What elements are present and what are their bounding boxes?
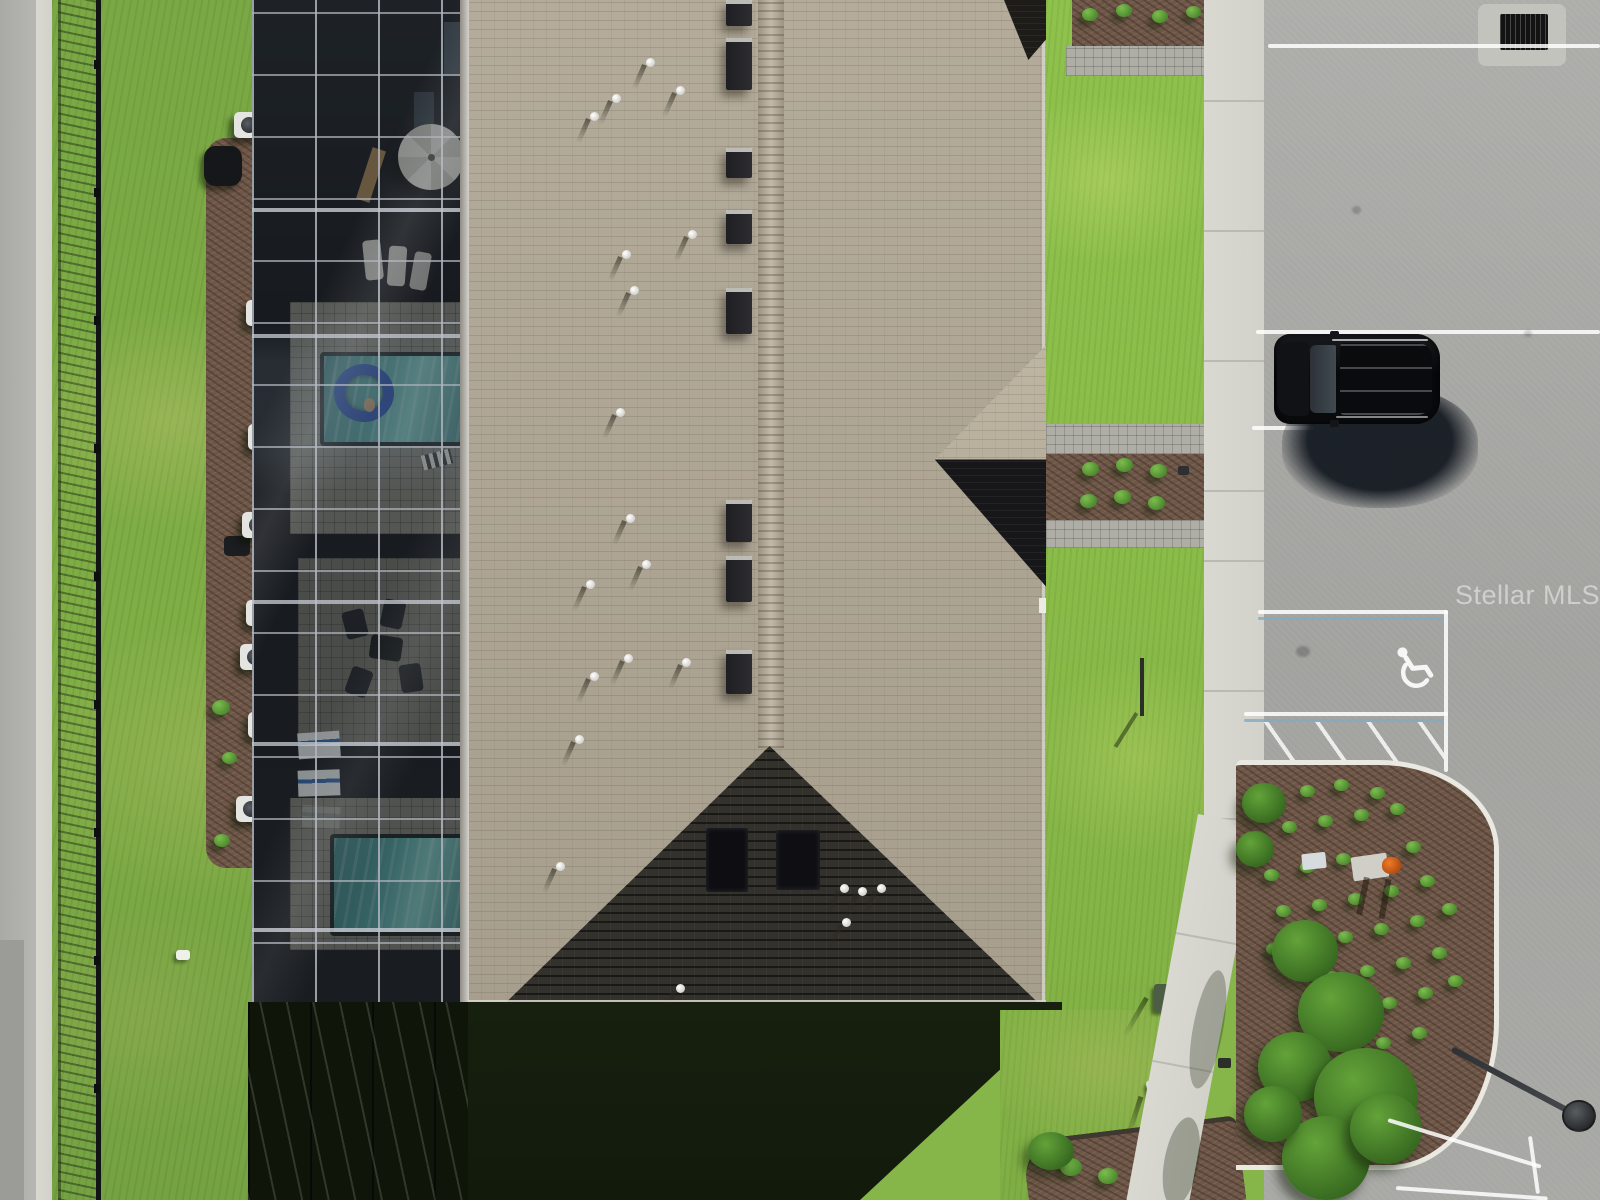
fence-post bbox=[94, 700, 100, 709]
pipe-vent bbox=[840, 884, 849, 893]
shrub bbox=[1276, 905, 1291, 917]
shrub bbox=[1406, 841, 1421, 853]
sidewalk-joint bbox=[1204, 230, 1264, 232]
white-debris bbox=[176, 950, 190, 960]
fence-post bbox=[94, 828, 100, 837]
pipe-vent bbox=[842, 918, 851, 927]
shrub bbox=[1334, 779, 1349, 791]
pipe-vent bbox=[586, 580, 595, 589]
sidewalk-joint bbox=[1204, 690, 1264, 692]
enclosure-shadow bbox=[248, 1002, 468, 1200]
ground-junction-box bbox=[1218, 1058, 1231, 1068]
light-pole-head bbox=[1562, 1100, 1596, 1132]
screen-glare bbox=[252, 0, 466, 1006]
fence-post bbox=[94, 572, 100, 581]
fence-post bbox=[94, 316, 100, 325]
car-roof-rails bbox=[1340, 343, 1432, 415]
roof-vent bbox=[726, 38, 752, 90]
shrub bbox=[1396, 957, 1411, 969]
roof-vent bbox=[726, 0, 752, 26]
car-hood bbox=[1277, 342, 1309, 416]
sidewalk-joint bbox=[1204, 490, 1264, 492]
landscape-light bbox=[1178, 466, 1189, 475]
car-glint bbox=[1336, 416, 1428, 418]
bush-shadow-on-sidewalk bbox=[1182, 968, 1233, 1091]
shrub bbox=[214, 834, 230, 847]
aerial-photo-scene: Stellar MLS bbox=[0, 0, 1600, 1200]
shrub bbox=[1432, 947, 1447, 959]
fence-post bbox=[94, 60, 100, 69]
shrub bbox=[1318, 815, 1333, 827]
pipe-vent bbox=[616, 408, 625, 417]
pipe-vent bbox=[575, 735, 584, 744]
utility-pad bbox=[1301, 852, 1327, 870]
shrub bbox=[1152, 10, 1168, 23]
shrub bbox=[1412, 1027, 1427, 1039]
shrub bbox=[1148, 496, 1165, 510]
shrub bbox=[1336, 853, 1351, 865]
shrub bbox=[1390, 803, 1405, 815]
pad-shadow bbox=[1379, 879, 1392, 919]
pool-screen-enclosure bbox=[252, 0, 466, 1006]
parking-stall-line-vertical bbox=[1444, 610, 1448, 772]
parking-stall-line bbox=[1258, 610, 1448, 614]
shrub bbox=[1360, 965, 1375, 977]
shrub bbox=[1370, 787, 1385, 799]
bush bbox=[1028, 1132, 1074, 1170]
accessible-accent-line bbox=[1258, 617, 1448, 620]
pipe-vent bbox=[858, 887, 867, 896]
car-mirror bbox=[1330, 420, 1339, 427]
pipe-vent bbox=[590, 672, 599, 681]
pipe-vent bbox=[590, 112, 599, 121]
shrub bbox=[1116, 4, 1132, 17]
building-fascia bbox=[460, 0, 469, 1006]
watermark: Stellar MLS bbox=[1430, 580, 1600, 611]
parking-stall-line bbox=[1244, 712, 1448, 716]
parked-suv bbox=[1274, 334, 1440, 424]
sidewalk bbox=[1204, 0, 1264, 830]
sidewalk-joint bbox=[1204, 560, 1264, 562]
pipe-vent bbox=[646, 58, 655, 67]
fence-post bbox=[94, 1084, 100, 1093]
hedge-bush bbox=[1244, 1086, 1302, 1142]
shrub bbox=[1312, 899, 1327, 911]
entry-walkway bbox=[1046, 424, 1206, 454]
roof-vent bbox=[726, 650, 752, 694]
shrub bbox=[1382, 997, 1397, 1009]
sidewalk-joint bbox=[1204, 100, 1264, 102]
shrub bbox=[1418, 987, 1433, 999]
fence-shadow bbox=[58, 0, 98, 1200]
pipe-vent bbox=[676, 984, 685, 993]
shrub bbox=[212, 700, 230, 715]
shrub bbox=[1114, 490, 1131, 504]
pipe-vent bbox=[688, 230, 697, 239]
fence-post bbox=[94, 956, 100, 965]
fence-line bbox=[96, 0, 101, 1200]
bush bbox=[1236, 831, 1274, 867]
bush bbox=[1242, 783, 1286, 823]
fire-hydrant bbox=[1382, 857, 1401, 874]
shrub bbox=[1338, 931, 1353, 943]
pipe-vent bbox=[626, 514, 635, 523]
street-curb bbox=[36, 0, 52, 1200]
shrub bbox=[1098, 1168, 1118, 1184]
pipe-vent bbox=[676, 86, 685, 95]
pavement-stain bbox=[1524, 330, 1532, 337]
shrub bbox=[1150, 464, 1167, 478]
shrub bbox=[1116, 458, 1133, 472]
roof-vent bbox=[726, 210, 752, 244]
shrub bbox=[222, 752, 237, 764]
fence-post bbox=[94, 188, 100, 197]
pavement-stain bbox=[1352, 206, 1361, 214]
shrub bbox=[1420, 875, 1435, 887]
roof-vent bbox=[726, 556, 752, 602]
entry-walkway bbox=[1046, 520, 1206, 548]
car-windshield bbox=[1310, 345, 1336, 413]
grill-equipment bbox=[204, 146, 242, 186]
car-glint bbox=[1332, 339, 1428, 341]
shrub bbox=[1082, 8, 1098, 21]
shrub bbox=[1376, 1037, 1391, 1049]
pipe-vent bbox=[612, 94, 621, 103]
sidewalk-joint bbox=[1204, 360, 1264, 362]
building-shadow bbox=[468, 1002, 1062, 1200]
roof-vent bbox=[726, 148, 752, 178]
shrub bbox=[1186, 6, 1201, 18]
roof-skylight bbox=[706, 828, 748, 892]
shrub bbox=[1282, 821, 1297, 833]
shrub bbox=[1300, 785, 1315, 797]
entry-walkway bbox=[1066, 46, 1206, 76]
shrub bbox=[1448, 975, 1463, 987]
shrub bbox=[1354, 809, 1369, 821]
pipe-vent bbox=[642, 560, 651, 569]
sign-post bbox=[1140, 658, 1144, 716]
roof-vent bbox=[726, 500, 752, 542]
roof-skylight bbox=[776, 830, 820, 890]
shrub bbox=[1080, 494, 1097, 508]
pipe-vent bbox=[624, 654, 633, 663]
parking-stall-line bbox=[1268, 44, 1600, 48]
car-mirror bbox=[1330, 331, 1339, 338]
pipe-vent bbox=[630, 286, 639, 295]
pipe-vent bbox=[682, 658, 691, 667]
shrub bbox=[1442, 903, 1457, 915]
street-asphalt-dark-section bbox=[0, 940, 24, 1200]
pavement-stain bbox=[1296, 646, 1310, 657]
pipe-vent bbox=[622, 250, 631, 259]
shrub bbox=[1264, 869, 1279, 881]
patio-equipment bbox=[224, 536, 250, 556]
ridge-cap bbox=[758, 0, 784, 748]
fence-post bbox=[94, 444, 100, 453]
shrub bbox=[1374, 923, 1389, 935]
planting-bed-top bbox=[1072, 0, 1206, 46]
pipe-vent bbox=[556, 862, 565, 871]
roof-vent bbox=[726, 288, 752, 334]
sidewalk-joint bbox=[1176, 932, 1237, 945]
shrub bbox=[1082, 462, 1099, 476]
shrub bbox=[1410, 915, 1425, 927]
pipe-vent bbox=[877, 884, 886, 893]
